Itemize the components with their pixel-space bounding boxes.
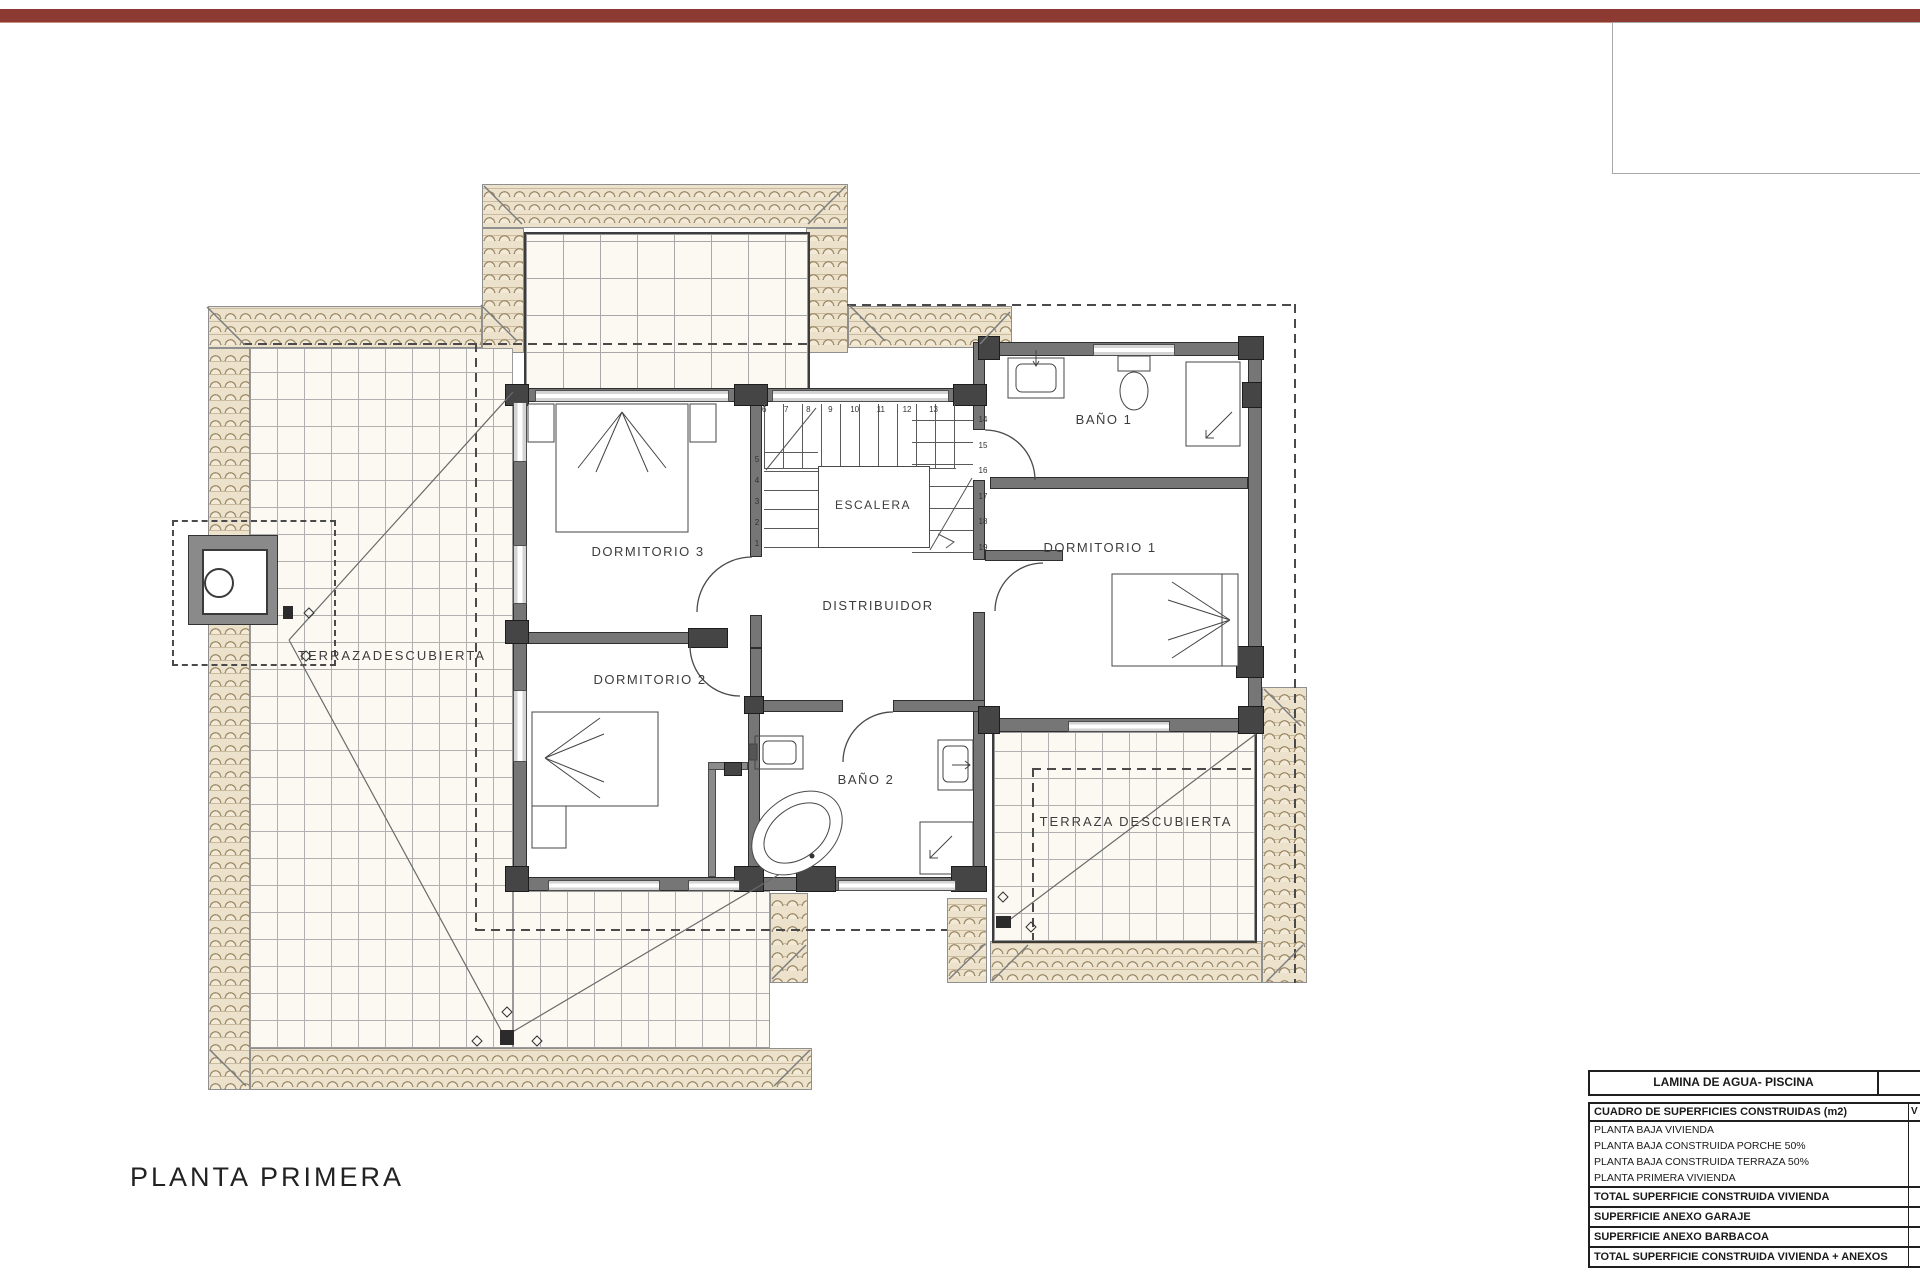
stair-number: 4 — [752, 477, 762, 485]
wall-bano1-dorm1 — [990, 477, 1248, 489]
pool-table-value — [1877, 1072, 1920, 1094]
pier — [796, 866, 836, 892]
roof-band-left-terrace-top — [208, 306, 482, 348]
areas-row: PLANTA BAJA CONSTRUIDA PORCHE 50% — [1590, 1138, 1920, 1154]
roof-band-top-terrace-left — [482, 228, 524, 353]
stair-number: 16 — [976, 467, 990, 475]
drawing-sheet: 678910111213 141516171819 54321 — [0, 0, 1920, 1280]
top-terrace-paving — [524, 232, 810, 390]
stair-number: 13 — [929, 406, 938, 416]
window — [548, 880, 660, 891]
pier — [1242, 382, 1262, 408]
right-terrace-dashed-left — [1032, 768, 1034, 940]
pier — [978, 706, 1000, 734]
areas-total-label: SUPERFICIE ANEXO GARAJE — [1590, 1211, 1908, 1223]
window — [838, 880, 956, 891]
areas-row-value — [1908, 1170, 1920, 1186]
house-floor-east-wing — [985, 342, 1262, 732]
pier — [1238, 336, 1264, 360]
room-label-dormitorio-3: DORMITORIO 3 — [591, 544, 704, 559]
pier — [951, 866, 987, 892]
stair-flight-left — [764, 452, 818, 556]
roof-band-top-terrace-right — [806, 228, 848, 353]
roof-band-left-terrace-left — [208, 348, 250, 1090]
stair-number: 2 — [752, 519, 762, 527]
room-label-terraza-derecha: TERRAZA DESCUBIERTA — [1040, 814, 1233, 829]
room-label-terraza-izquierda: TERRAZADESCUBIERTA — [298, 648, 486, 663]
areas-total-label: SUPERFICIE ANEXO BARBACOA — [1590, 1231, 1908, 1243]
wall-distribuidor-bano2-left — [762, 700, 843, 712]
areas-row-label: PLANTA BAJA CONSTRUIDA PORCHE 50% — [1590, 1140, 1908, 1152]
window — [688, 880, 740, 891]
roof-overhang-dashed-top — [243, 343, 808, 345]
room-label-escalera: ESCALERA — [835, 498, 911, 512]
roof-band-left-terrace-bottom — [250, 1048, 812, 1090]
areas-total-row: SUPERFICIE ANEXO GARAJE — [1590, 1206, 1920, 1226]
window — [1068, 721, 1170, 732]
stair-number: 12 — [903, 406, 912, 416]
pool-table: LAMINA DE AGUA- PISCINA — [1588, 1070, 1920, 1096]
pier — [978, 336, 1000, 360]
areas-total-row: TOTAL SUPERFICIE CONSTRUIDA VIVIENDA — [1590, 1186, 1920, 1206]
wall-dorm3-dorm2 — [527, 632, 692, 644]
areas-total-row: TOTAL SUPERFICIE CONSTRUIDA VIVIENDA + A… — [1590, 1246, 1920, 1266]
stair-numbers-left: 54321 — [752, 456, 762, 548]
areas-total-value — [1908, 1248, 1920, 1266]
areas-row: PLANTA BAJA CONSTRUIDA TERRAZA 50% — [1590, 1154, 1920, 1170]
areas-total-row: SUPERFICIE ANEXO BARBACOA — [1590, 1226, 1920, 1246]
window — [513, 690, 527, 762]
pier — [744, 696, 764, 714]
left-terrace-paving — [250, 348, 513, 1048]
areas-header-value: V — [1908, 1104, 1920, 1120]
roof-band-top-terrace-top — [482, 184, 848, 228]
window — [513, 402, 527, 462]
pier — [505, 866, 529, 892]
stair-numbers-top: 678910111213 — [762, 406, 938, 416]
room-label-dormitorio-1: DORMITORIO 1 — [1043, 540, 1156, 555]
stair-number: 10 — [850, 406, 859, 416]
window — [1093, 344, 1175, 356]
stair-number: 18 — [976, 518, 990, 526]
page-title: PLANTA PRIMERA — [130, 1162, 404, 1193]
roof-strip-below-bano2-right — [947, 898, 987, 983]
areas-header-label: CUADRO DE SUPERFICIES CONSTRUIDAS (m2) — [1590, 1106, 1908, 1118]
areas-row-value — [1908, 1138, 1920, 1154]
pier — [688, 628, 728, 648]
stair-number: 5 — [752, 456, 762, 464]
areas-row: PLANTA BAJA VIVIENDA — [1590, 1122, 1920, 1138]
stair-number: 11 — [877, 406, 885, 416]
stair-number: 9 — [828, 406, 832, 416]
roof-overhang-dashed-left — [475, 343, 477, 931]
areas-table-header: CUADRO DE SUPERFICIES CONSTRUIDAS (m2) V — [1590, 1104, 1920, 1122]
window — [513, 545, 527, 604]
stair-number: 17 — [976, 493, 990, 501]
pier — [505, 620, 529, 644]
room-label-bano-1: BAÑO 1 — [1076, 412, 1133, 427]
areas-row-value — [1908, 1122, 1920, 1138]
right-terrace-dashed-top — [1032, 768, 1253, 770]
stair-numbers-right: 141516171819 — [976, 416, 990, 552]
roof-band-right-terrace-right — [1262, 687, 1307, 983]
areas-row-label: PLANTA BAJA VIVIENDA — [1590, 1124, 1908, 1136]
areas-total-label: TOTAL SUPERFICIE CONSTRUIDA VIVIENDA + A… — [1590, 1251, 1908, 1263]
room-label-dormitorio-2: DORMITORIO 2 — [593, 672, 706, 687]
roof-overhang-dashed-east — [1294, 304, 1296, 983]
areas-row-label: PLANTA BAJA CONSTRUIDA TERRAZA 50% — [1590, 1156, 1908, 1168]
pier — [734, 384, 768, 406]
areas-total-value — [1908, 1208, 1920, 1226]
window — [535, 390, 729, 402]
wall-distribuidor-bano2-right — [893, 700, 985, 712]
stair-number: 3 — [752, 498, 762, 506]
stair-number: 14 — [976, 416, 990, 424]
areas-total-label: TOTAL SUPERFICIE CONSTRUIDA VIVIENDA — [1590, 1191, 1908, 1203]
pier — [1238, 706, 1264, 734]
roof-overhang-dashed-ne — [847, 304, 1296, 306]
areas-row-label: PLANTA PRIMERA VIVIENDA — [1590, 1172, 1908, 1184]
wall-dorm2-nook-v — [708, 762, 716, 877]
wall-bano2-west — [748, 712, 760, 877]
pier — [724, 762, 742, 776]
pool-table-label: LAMINA DE AGUA- PISCINA — [1590, 1072, 1877, 1094]
room-label-distribuidor: DISTRIBUIDOR — [822, 598, 933, 613]
wall-east-lower — [973, 612, 985, 891]
stair-number: 19 — [976, 544, 990, 552]
roof-band-right-terrace-bottom — [990, 941, 1262, 983]
stair-number: 8 — [806, 406, 810, 416]
pier — [1236, 646, 1264, 678]
pier — [953, 384, 987, 406]
areas-total-value — [1908, 1228, 1920, 1246]
room-label-bano-2: BAÑO 2 — [838, 772, 895, 787]
areas-table: CUADRO DE SUPERFICIES CONSTRUIDAS (m2) V… — [1588, 1102, 1920, 1268]
pool-table-row: LAMINA DE AGUA- PISCINA — [1590, 1072, 1920, 1094]
sheet-accent-bar — [0, 9, 1920, 23]
roof-strip-below-bano2-left — [770, 893, 808, 983]
stair-number: 1 — [752, 540, 762, 548]
window — [772, 390, 949, 402]
areas-row-value — [1908, 1154, 1920, 1170]
south-terrace-paving — [513, 891, 770, 1048]
stair-number: 7 — [784, 406, 788, 416]
areas-row: PLANTA PRIMERA VIVIENDA — [1590, 1170, 1920, 1186]
roof-overhang-dashed-south — [476, 929, 947, 931]
stair-number: 15 — [976, 442, 990, 450]
chimney-flue-circle — [204, 568, 234, 598]
title-block-box — [1612, 22, 1920, 174]
stair-number: 6 — [762, 406, 766, 416]
areas-total-value — [1908, 1188, 1920, 1206]
wall-stair-west-lower — [750, 615, 762, 648]
